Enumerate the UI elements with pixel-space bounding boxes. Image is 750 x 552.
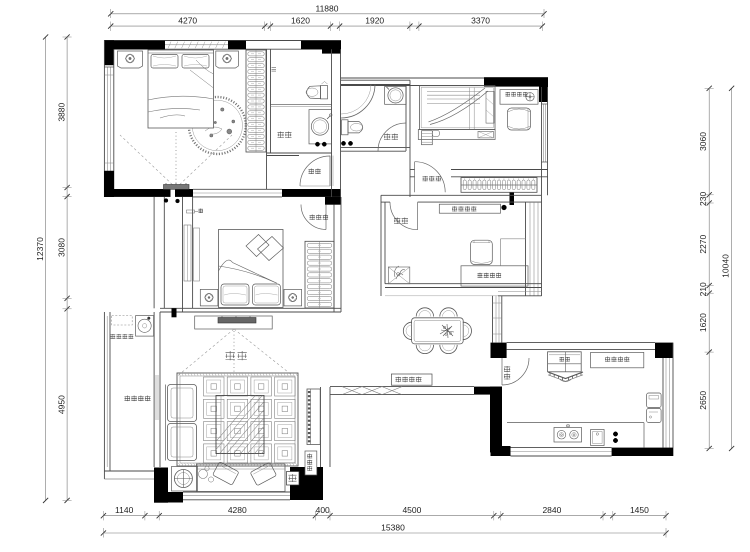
svg-text:2270: 2270 [698,234,708,253]
svg-text:230: 230 [698,192,708,206]
svg-text:2840: 2840 [542,505,561,515]
svg-text:4270: 4270 [178,16,197,26]
svg-text:10040: 10040 [721,254,731,278]
svg-text:1140: 1140 [115,505,134,515]
svg-text:4280: 4280 [228,505,247,515]
svg-text:1920: 1920 [365,16,384,26]
svg-text:210: 210 [698,282,708,296]
svg-text:12370: 12370 [35,237,45,261]
svg-text:3060: 3060 [698,132,708,151]
svg-text:3080: 3080 [57,238,67,257]
svg-text:3880: 3880 [57,102,67,121]
svg-text:11880: 11880 [315,4,338,14]
svg-text:2650: 2650 [698,391,708,410]
svg-text:1450: 1450 [630,505,649,515]
svg-text:1620: 1620 [698,313,708,332]
svg-text:400: 400 [316,505,330,515]
svg-text:4500: 4500 [402,505,421,515]
svg-text:3370: 3370 [471,16,490,26]
svg-text:4950: 4950 [57,395,67,414]
svg-text:1620: 1620 [291,16,310,26]
svg-text:15380: 15380 [381,523,405,533]
